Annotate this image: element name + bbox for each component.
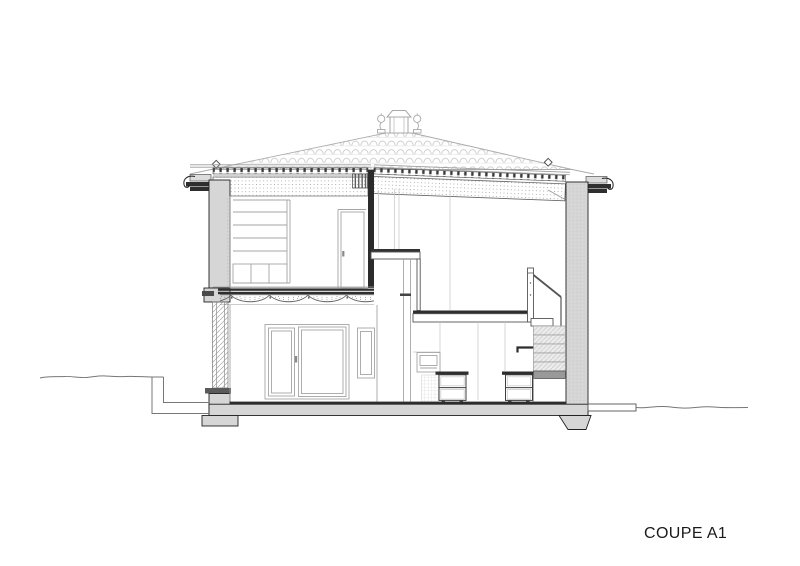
ground-line-right — [636, 406, 748, 408]
mezzanine-slab — [413, 311, 529, 323]
section-drawing — [0, 0, 800, 566]
footing-left — [202, 416, 238, 427]
exterior-wall-right — [566, 182, 588, 416]
shelving-unit — [233, 200, 290, 283]
tile-backsplash — [422, 375, 439, 402]
roof-finial-right — [414, 113, 422, 133]
ground-line-left — [40, 376, 152, 378]
section-label: COUPE A1 — [644, 525, 784, 543]
decorative-frieze — [220, 294, 374, 305]
ground-room-left — [230, 305, 377, 402]
handrail — [534, 275, 562, 297]
window-handle — [295, 356, 297, 363]
stair-wall-bracket — [518, 348, 535, 353]
attic-beam — [353, 174, 368, 188]
side-window — [358, 328, 375, 378]
roof-finial-left — [378, 113, 386, 133]
upper-room — [230, 196, 368, 288]
staircase — [528, 268, 566, 402]
kitchen — [413, 322, 535, 403]
terrace-left — [152, 377, 209, 414]
footing-right — [559, 416, 591, 430]
eave-cornice-right — [585, 177, 613, 194]
architectural-drawing: COUPE A1 — [0, 0, 800, 566]
terrace-door-sill — [205, 388, 231, 394]
wall-shelf-mark — [400, 294, 411, 297]
step-right — [588, 404, 636, 411]
eave-cornice-left — [184, 175, 212, 192]
wall-left-window-cut — [213, 302, 229, 388]
floor-slab-left — [213, 287, 374, 305]
upper-room-door — [338, 210, 366, 289]
exterior-wall-left-lower — [202, 288, 231, 416]
drawer-unit-2 — [502, 372, 535, 403]
oven — [417, 353, 440, 373]
interior-wall-center — [368, 170, 374, 288]
stair-top-step — [531, 319, 553, 327]
ground-floor-slab — [202, 402, 591, 430]
drawer-unit-1 — [436, 372, 469, 403]
roof-slab-right — [373, 165, 570, 201]
stair-base-beam — [534, 371, 566, 379]
wall-left-lining — [225, 196, 230, 288]
bulkhead-ledge — [371, 249, 420, 311]
stair-treads — [534, 326, 566, 371]
door-handle — [342, 251, 344, 257]
french-doors — [265, 325, 349, 400]
chimney — [387, 111, 411, 134]
